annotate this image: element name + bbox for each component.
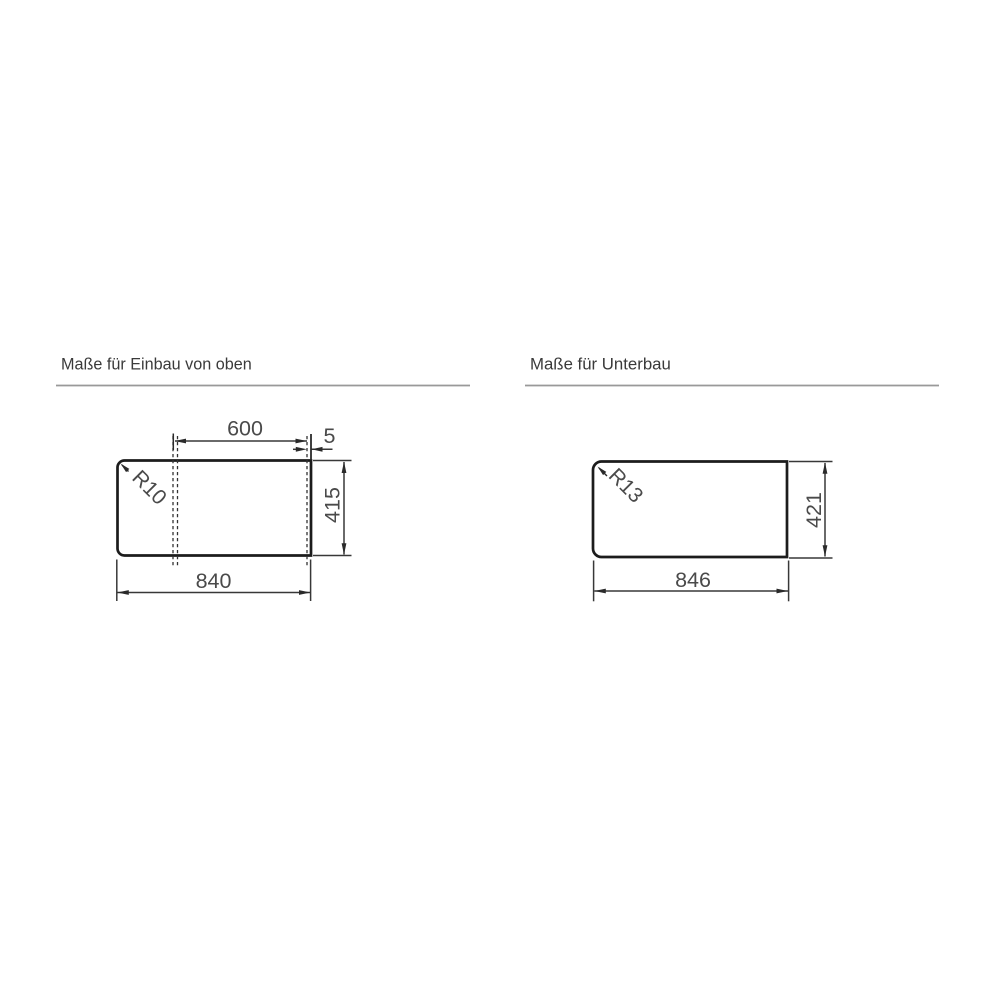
svg-text:421: 421 — [802, 492, 826, 528]
svg-text:415: 415 — [321, 487, 345, 523]
svg-text:600: 600 — [227, 417, 263, 441]
svg-text:846: 846 — [675, 568, 711, 592]
svg-text:Maße für Einbau von oben: Maße für Einbau von oben — [61, 356, 252, 374]
svg-text:5: 5 — [324, 424, 336, 448]
svg-text:840: 840 — [196, 569, 232, 593]
svg-text:Maße für Unterbau: Maße für Unterbau — [530, 355, 671, 374]
